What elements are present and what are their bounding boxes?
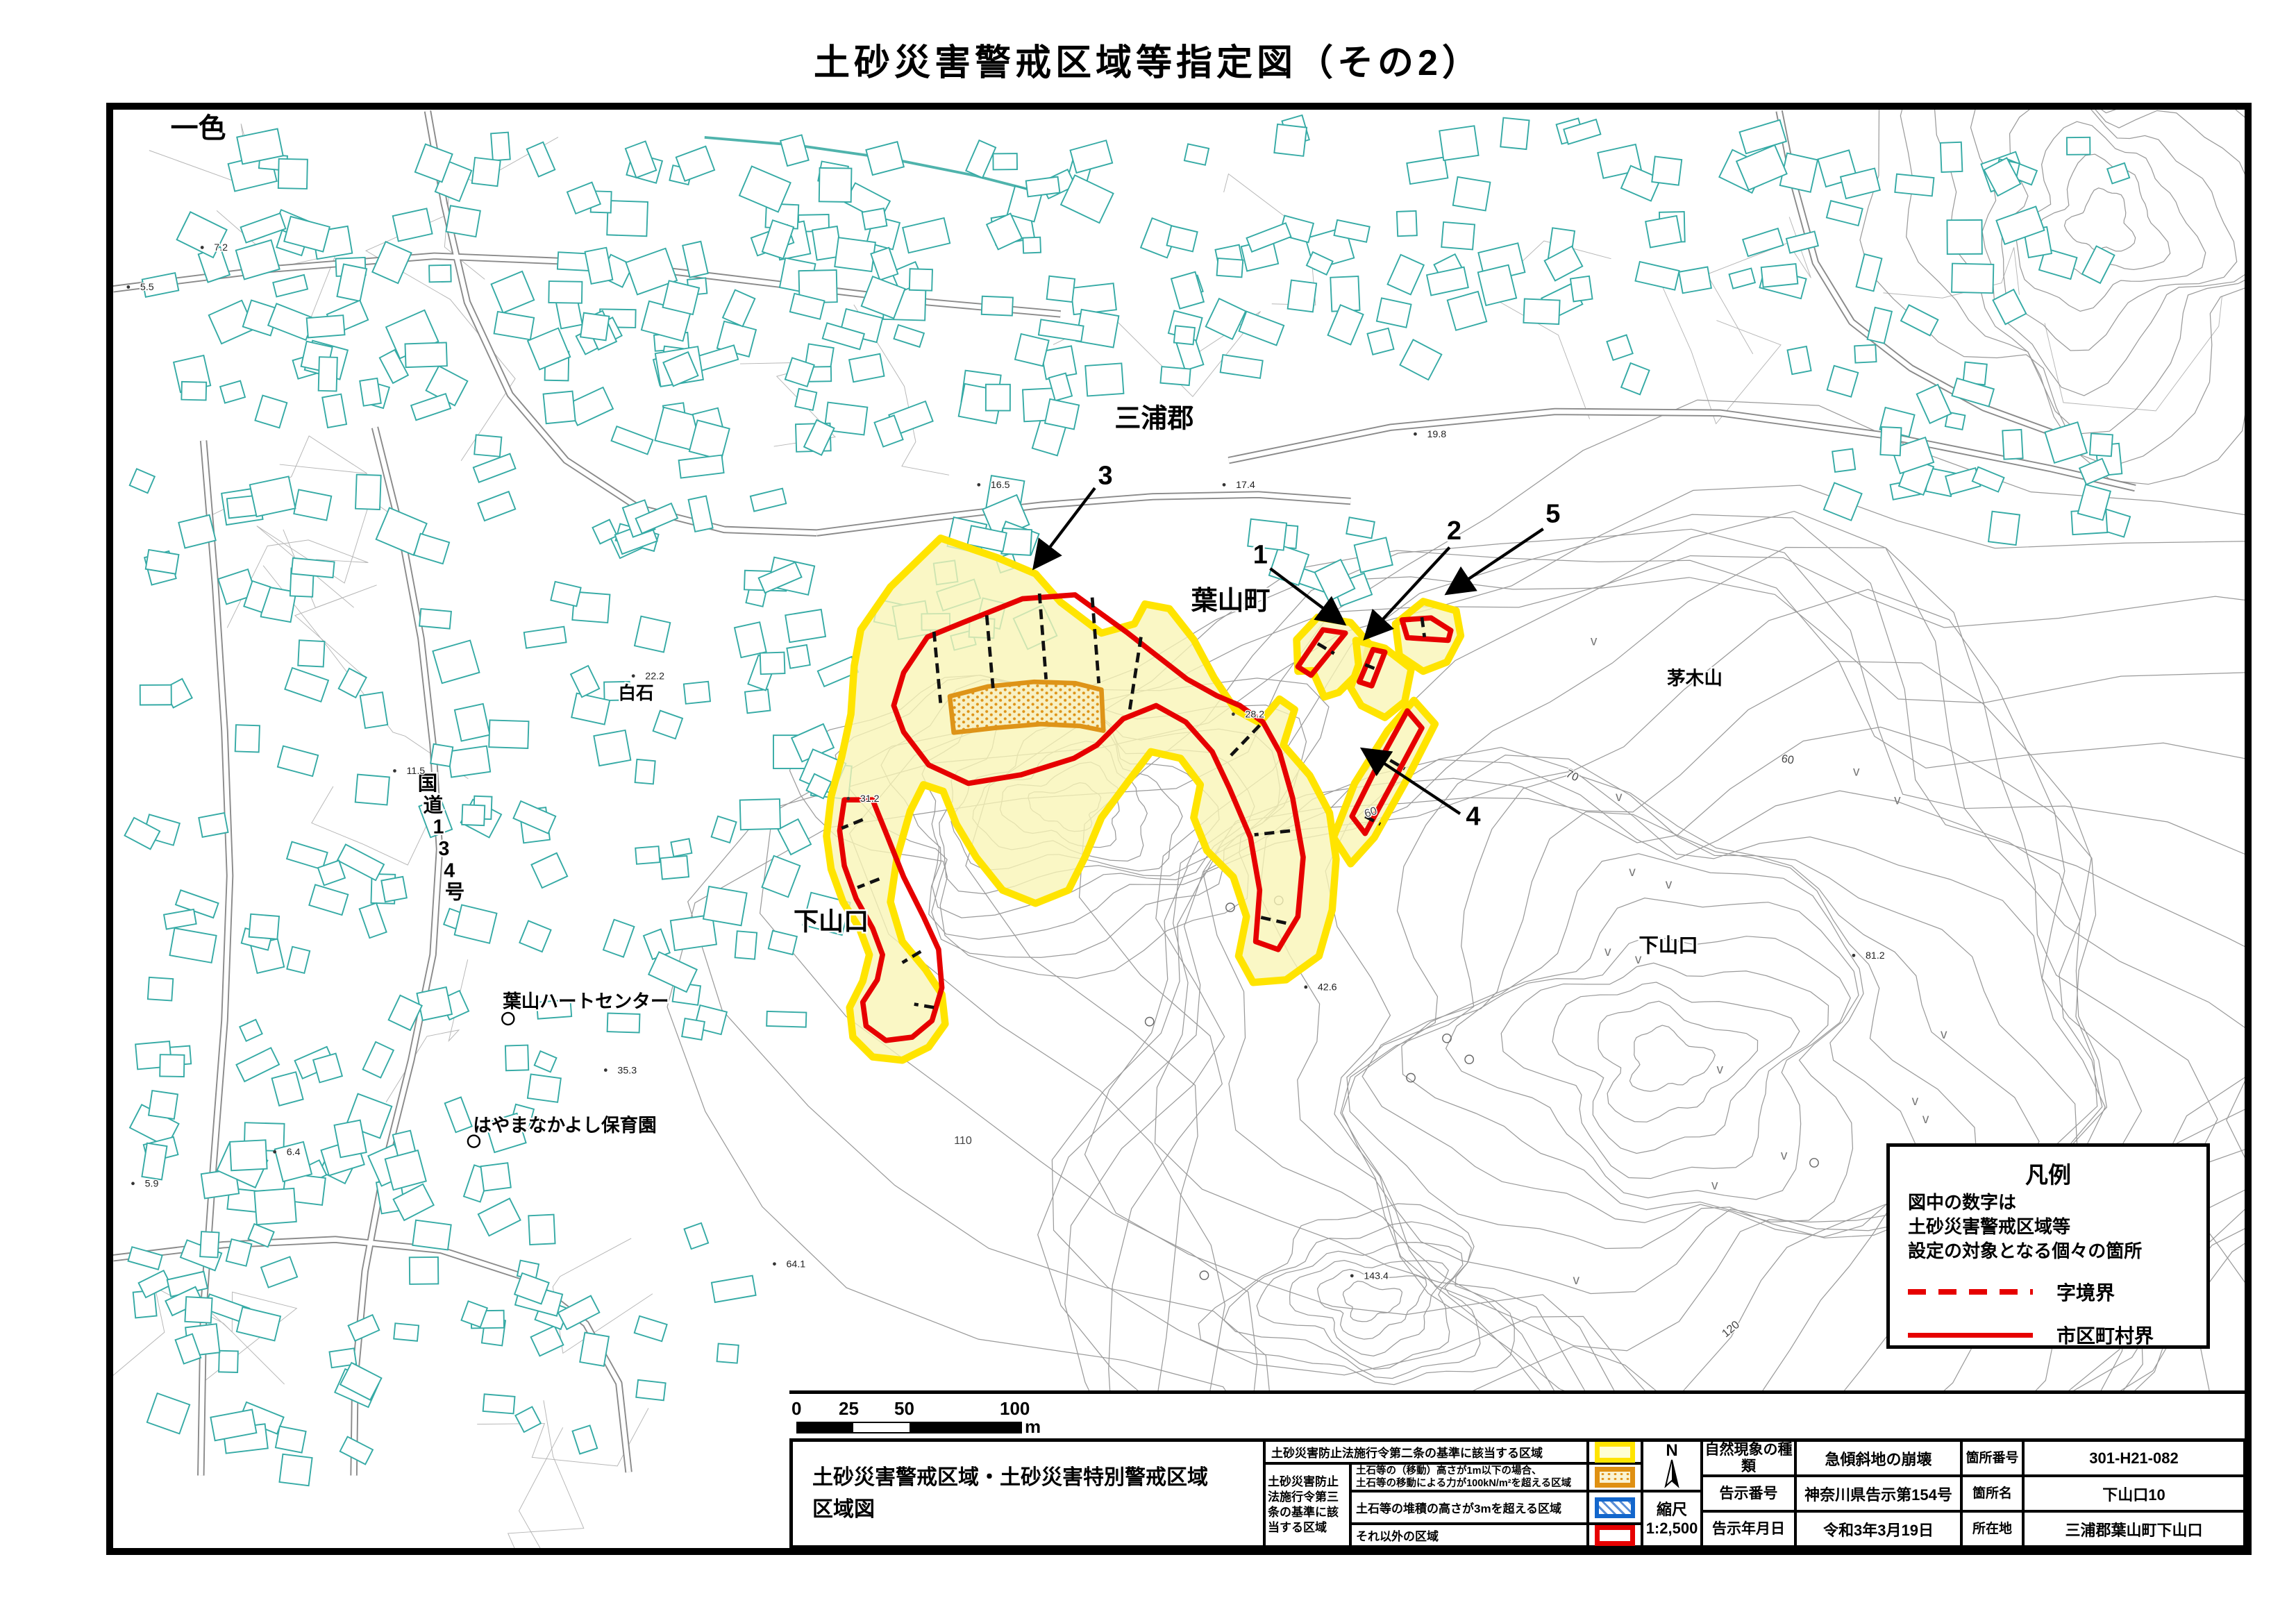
building	[1740, 120, 1786, 153]
building	[769, 931, 797, 955]
site-number: 1	[1253, 540, 1268, 569]
building	[381, 877, 407, 902]
legend-item-municipal-boundary: 市区町村界	[1908, 1321, 2206, 1349]
building	[1071, 283, 1116, 314]
building	[696, 345, 738, 371]
building	[230, 1140, 267, 1170]
vegetation-icon: v	[1894, 793, 1901, 807]
building	[410, 1257, 439, 1284]
field-value: 令和3年3月19日	[1823, 1518, 1934, 1540]
building	[524, 627, 567, 648]
building	[429, 265, 451, 283]
building	[2107, 163, 2129, 184]
building	[393, 208, 433, 241]
building	[1274, 124, 1307, 156]
building	[1400, 339, 1441, 380]
field-value: 急傾斜地の崩壊	[1825, 1447, 1932, 1470]
building	[147, 1393, 190, 1433]
building	[160, 1054, 184, 1077]
building	[573, 1425, 598, 1454]
zone-row3-label: 土石等の堆積の高さが3mを超える区域	[1356, 1499, 1561, 1516]
building	[689, 420, 730, 460]
contour-line	[1552, 982, 1800, 1153]
building	[474, 435, 501, 456]
building	[635, 1316, 667, 1341]
building	[760, 653, 785, 675]
contour-label: 60	[1780, 752, 1795, 767]
building	[1039, 319, 1084, 342]
building	[862, 208, 887, 230]
building	[287, 842, 328, 870]
building	[164, 909, 196, 929]
vegetation-icon: v	[1711, 1178, 1718, 1193]
field-value: 三浦郡葉山町下山口	[2065, 1518, 2202, 1540]
building	[515, 1407, 541, 1432]
building	[226, 1239, 252, 1266]
tree-icon	[1465, 1055, 1473, 1063]
building	[279, 1454, 312, 1486]
spot-elevation-dot	[1852, 954, 1856, 957]
building	[446, 205, 480, 237]
building	[580, 313, 609, 341]
building	[1171, 272, 1204, 309]
building	[478, 1198, 521, 1236]
building	[1635, 262, 1679, 290]
building	[480, 1163, 510, 1191]
scale-value: 1:2,500	[1646, 1519, 1698, 1538]
field-label-cell: 自然現象の種類	[1702, 1440, 1795, 1476]
building	[1160, 367, 1190, 385]
building	[149, 1091, 178, 1119]
spot-elevation: 81.2	[1866, 950, 1885, 961]
building	[1947, 220, 1981, 254]
sheet-title-line1: 土砂災害警戒区域・土砂災害特別警戒区域	[812, 1462, 1208, 1494]
building	[1427, 267, 1468, 296]
building	[993, 153, 1017, 169]
compass-icon: N	[1643, 1443, 1700, 1489]
building	[535, 1051, 557, 1072]
building	[448, 746, 490, 777]
building	[287, 947, 310, 973]
building	[986, 385, 1010, 411]
building	[2082, 246, 2114, 283]
building	[1330, 276, 1359, 312]
building	[355, 775, 389, 805]
building	[903, 218, 950, 253]
warning-zone-yellow	[826, 538, 1336, 1060]
building	[130, 469, 155, 493]
road-label-char: 号	[445, 882, 464, 904]
scale-tick: 25	[839, 1398, 859, 1420]
building	[751, 489, 786, 512]
building	[1729, 268, 1755, 288]
building	[635, 846, 660, 864]
building	[894, 325, 923, 347]
building	[340, 1437, 373, 1465]
area-label: 白石	[618, 682, 653, 703]
yellow-zone-swatch-icon	[1595, 1442, 1635, 1463]
building	[430, 744, 453, 766]
field-label: 告示番号	[1720, 1486, 1778, 1502]
building	[966, 140, 996, 178]
swatch-blue-cell	[1588, 1491, 1642, 1524]
building	[780, 135, 809, 166]
legend-item-aza-boundary: 字境界	[1908, 1278, 2206, 1306]
building	[1045, 399, 1079, 429]
spot-elevation: 42.6	[1318, 982, 1337, 993]
building	[1441, 222, 1475, 250]
poi-label: はやまなかよし保育園	[473, 1115, 656, 1136]
legend-note-line: 設定の対象となる個々の箇所	[1908, 1240, 2206, 1263]
tree-icon	[1200, 1271, 1208, 1279]
vegetation-icon: v	[1616, 790, 1623, 805]
legend-item-label: 市区町村界	[2056, 1321, 2154, 1349]
field-label-cell: 告示年月日	[1702, 1511, 1795, 1547]
legend-note-line: 図中の数字は	[1908, 1191, 2206, 1214]
tree-icon	[1810, 1159, 1818, 1167]
building	[272, 1072, 303, 1106]
field-label-cell: 告示番号	[1702, 1476, 1795, 1511]
spot-elevation: 19.8	[1427, 429, 1447, 440]
building	[445, 1097, 472, 1132]
building	[1407, 157, 1448, 184]
vegetation-icon: v	[1629, 865, 1636, 880]
compass-n-label: N	[1666, 1443, 1677, 1458]
spot-elevation-dot	[1304, 986, 1307, 989]
building	[1015, 334, 1049, 366]
field-label: 告示年月日	[1712, 1521, 1785, 1538]
spot-elevation-dot	[773, 1262, 776, 1265]
building	[1901, 305, 1938, 335]
contour-line	[1343, 1281, 1402, 1322]
spot-elevation-dot	[393, 769, 396, 773]
spot-elevation: 5.5	[140, 282, 154, 293]
building	[455, 704, 490, 741]
contour-line	[1347, 811, 1977, 1248]
building	[703, 886, 747, 925]
building	[558, 1296, 599, 1329]
law2-label: 土砂災害防止法施行令第二条の基準に該当する区域	[1271, 1443, 1543, 1461]
building	[349, 1315, 380, 1341]
spot-elevation: 6.4	[287, 1147, 301, 1158]
building	[1880, 427, 1901, 455]
building	[1952, 378, 1993, 407]
building	[455, 905, 497, 943]
building	[2067, 137, 2090, 155]
building	[712, 1276, 756, 1302]
building	[1070, 140, 1112, 173]
contour-line	[1629, 1025, 1715, 1091]
poi-marker	[502, 1013, 514, 1025]
building	[745, 689, 771, 713]
building	[723, 290, 755, 327]
building	[527, 142, 555, 177]
site-number: 4	[1466, 802, 1480, 831]
spot-elevation-dot	[604, 1068, 607, 1072]
area-label: 茅木山	[1667, 668, 1723, 689]
building	[682, 1018, 705, 1040]
contour-label: 120	[1720, 1318, 1742, 1340]
building	[1972, 467, 2004, 492]
building	[571, 666, 599, 697]
building	[1621, 363, 1650, 394]
vegetation-icon: v	[1853, 764, 1860, 779]
building	[2090, 433, 2113, 456]
contour-label: 70	[1564, 767, 1581, 784]
vegetation-icon: v	[1781, 1149, 1788, 1163]
swatch-orange-cell	[1588, 1463, 1642, 1491]
vegetation-icon: v	[1941, 1027, 1947, 1042]
building	[1023, 237, 1041, 253]
building	[1743, 228, 1783, 256]
building	[1184, 144, 1209, 165]
spot-elevation: 17.4	[1236, 480, 1255, 491]
building	[519, 920, 551, 952]
compass-cell: N	[1642, 1440, 1702, 1491]
building	[240, 1020, 262, 1041]
building	[494, 312, 535, 339]
building	[653, 711, 682, 739]
area-label: 葉山町	[1191, 587, 1271, 616]
building	[835, 237, 875, 271]
zone-row4-cell: それ以外の区域	[1350, 1524, 1588, 1547]
contour-line	[1402, 898, 1859, 1222]
spot-elevation: 64.1	[787, 1259, 806, 1270]
building	[528, 1074, 561, 1102]
scale-cell: 縮尺 1:2,500	[1642, 1491, 1702, 1547]
law2-cell: 土砂災害防止法施行令第二条の基準に該当する区域	[1264, 1440, 1588, 1463]
poi-marker	[468, 1136, 480, 1147]
building	[505, 1045, 528, 1071]
building	[528, 1215, 555, 1245]
building	[462, 805, 485, 825]
building	[1523, 298, 1559, 324]
building	[671, 839, 692, 857]
scale-tick: 50	[894, 1398, 914, 1420]
field-label: 箇所番号	[1966, 1450, 2018, 1467]
scale-segment	[853, 1423, 910, 1432]
building	[735, 931, 757, 959]
sheet-title-line2: 区域図	[812, 1494, 1208, 1526]
area-label: 下山口	[1639, 935, 1698, 957]
building	[199, 813, 228, 837]
area-label: 下山口	[794, 907, 869, 935]
spot-elevation-dot	[1350, 1274, 1354, 1277]
building	[910, 269, 932, 290]
building	[140, 685, 171, 705]
building	[684, 682, 710, 704]
field-label: 箇所名	[1972, 1486, 2012, 1502]
legend-box: 凡例 図中の数字は 土砂災害警戒区域等 設定の対象となる個々の箇所 字境界 市区…	[1886, 1143, 2210, 1349]
building	[1239, 312, 1284, 346]
building	[635, 759, 655, 784]
building	[1652, 156, 1682, 185]
building	[603, 920, 634, 957]
spot-elevation: 143.4	[1364, 1271, 1389, 1282]
building	[2045, 422, 2087, 463]
vegetation-icon: v	[1922, 1112, 1929, 1127]
spot-elevation: 35.3	[617, 1065, 637, 1076]
contour-line	[1598, 1001, 1758, 1122]
building	[489, 720, 528, 748]
building	[185, 1297, 212, 1323]
building	[766, 1011, 806, 1027]
building	[1217, 258, 1243, 277]
building	[1993, 289, 2026, 324]
building	[1206, 298, 1246, 339]
building	[531, 853, 567, 888]
vegetation-icon: v	[1591, 634, 1598, 649]
building	[1827, 201, 1863, 226]
building	[319, 357, 337, 391]
building	[1346, 517, 1375, 538]
scale-bar: 0 25 50 100 m	[791, 1398, 1083, 1437]
orange-zone	[950, 682, 1103, 732]
building	[849, 354, 884, 382]
building	[478, 491, 515, 521]
site-number: 2	[1447, 516, 1461, 546]
contour-label: 110	[954, 1134, 972, 1147]
building	[1787, 346, 1811, 374]
building	[1570, 276, 1593, 302]
building	[1854, 345, 1876, 363]
field-value: 神奈川県告示第154号	[1804, 1483, 1952, 1505]
building	[1367, 328, 1393, 355]
building	[309, 884, 348, 915]
spot-elevation: 28.2	[1245, 709, 1264, 721]
building	[472, 158, 501, 186]
building	[636, 1380, 665, 1400]
contour-line	[1362, 854, 1916, 1237]
area-label: 三浦郡	[1114, 405, 1193, 434]
building	[735, 622, 766, 657]
solid-red-line-icon	[1908, 1333, 2033, 1338]
scale-label: 縮尺	[1657, 1500, 1687, 1519]
building	[740, 799, 780, 830]
building	[648, 952, 697, 992]
building	[363, 1042, 394, 1078]
site-number: 3	[1098, 461, 1113, 490]
building	[1439, 126, 1478, 160]
spot-elevation: 5.9	[145, 1179, 159, 1190]
road-label-char: 道	[424, 793, 444, 816]
building	[360, 378, 381, 406]
building	[787, 645, 810, 668]
building	[2002, 430, 2022, 460]
vegetation-icon: v	[1716, 1063, 1723, 1077]
building	[235, 725, 260, 752]
building	[778, 819, 812, 855]
law3-cell: 土砂災害防止法施行令第三条の基準に該当する区域	[1264, 1463, 1350, 1547]
sheet-title-cell: 土砂災害警戒区域・土砂災害特別警戒区域 区域図	[791, 1440, 1264, 1547]
poi-label: 葉山ハートセンター	[502, 991, 669, 1011]
vegetation-icon: v	[1666, 877, 1673, 892]
building	[148, 977, 173, 1001]
scale-unit: m	[1025, 1416, 1041, 1438]
zone-row2-line2: 土石等の移動による力が100kN/m²を超える区域	[1356, 1477, 1571, 1490]
building	[1047, 276, 1075, 302]
building	[1288, 280, 1316, 312]
building	[142, 1143, 167, 1180]
spot-elevation-dot	[1232, 712, 1235, 716]
page-title: 土砂災害警戒区域等指定図（その2）	[0, 33, 2296, 85]
building	[278, 159, 308, 189]
building	[1645, 216, 1682, 248]
building	[1827, 366, 1859, 397]
building	[394, 1323, 419, 1341]
swatch-yellow-cell	[1588, 1440, 1642, 1463]
building	[1679, 267, 1711, 293]
compass-needle-icon	[1661, 1458, 1682, 1489]
spot-elevation-dot	[632, 674, 635, 678]
building	[871, 248, 898, 280]
spot-elevation-dot	[201, 246, 204, 249]
building	[585, 248, 613, 284]
parcel-line	[2045, 296, 2222, 410]
building	[411, 394, 451, 420]
field-label-cell: 箇所名	[1961, 1476, 2023, 1511]
info-table: 土砂災害警戒区域・土砂災害特別警戒区域 区域図 土砂災害防止法施行令第二条の基準…	[791, 1440, 2245, 1547]
building	[1085, 363, 1123, 396]
zone-row2-cell: 土石等の（移動）高さが1m以下の場合、 土石等の移動による力が100kN/m²を…	[1350, 1463, 1588, 1491]
building	[689, 496, 713, 532]
building	[417, 987, 451, 1020]
building	[298, 640, 324, 666]
building	[360, 692, 388, 728]
vegetation-icon: v	[1573, 1273, 1579, 1288]
building	[220, 381, 245, 403]
building	[322, 394, 346, 428]
law3-label: 土砂災害防止法施行令第三条の基準に該当する区域	[1268, 1474, 1347, 1536]
building	[785, 609, 826, 642]
blue-zone-swatch-icon	[1595, 1497, 1635, 1518]
field-value-cell: 下山口10	[2023, 1476, 2245, 1511]
building	[580, 1333, 609, 1366]
building	[1988, 512, 2020, 545]
scale-bar-graphic	[796, 1422, 1022, 1433]
tree-icon	[1146, 1018, 1154, 1026]
contour-line	[2064, 188, 2135, 251]
building	[292, 558, 335, 578]
building	[219, 1351, 238, 1372]
field-value-cell: 三浦郡葉山町下山口	[2023, 1511, 2245, 1547]
building	[170, 928, 217, 963]
building	[1607, 335, 1632, 360]
road-label-char: 4	[444, 859, 455, 882]
building	[544, 392, 576, 424]
building	[236, 240, 280, 280]
contour-line	[1446, 936, 1851, 1200]
building	[492, 271, 535, 313]
field-value: 下山口10	[2102, 1483, 2165, 1505]
building	[1895, 174, 1934, 196]
building	[146, 550, 179, 574]
building	[414, 534, 449, 564]
building	[607, 1013, 640, 1032]
building	[250, 476, 296, 516]
contour-line	[1860, 110, 2245, 485]
road-label-char: 1	[433, 816, 444, 839]
building	[982, 296, 1013, 316]
building	[1824, 483, 1862, 521]
spot-elevation: 22.2	[645, 671, 664, 682]
contour-line	[1259, 759, 2106, 1457]
building	[612, 426, 653, 454]
building	[1453, 177, 1491, 211]
building	[866, 142, 903, 175]
building	[819, 168, 852, 202]
contour-line	[2017, 121, 2206, 311]
